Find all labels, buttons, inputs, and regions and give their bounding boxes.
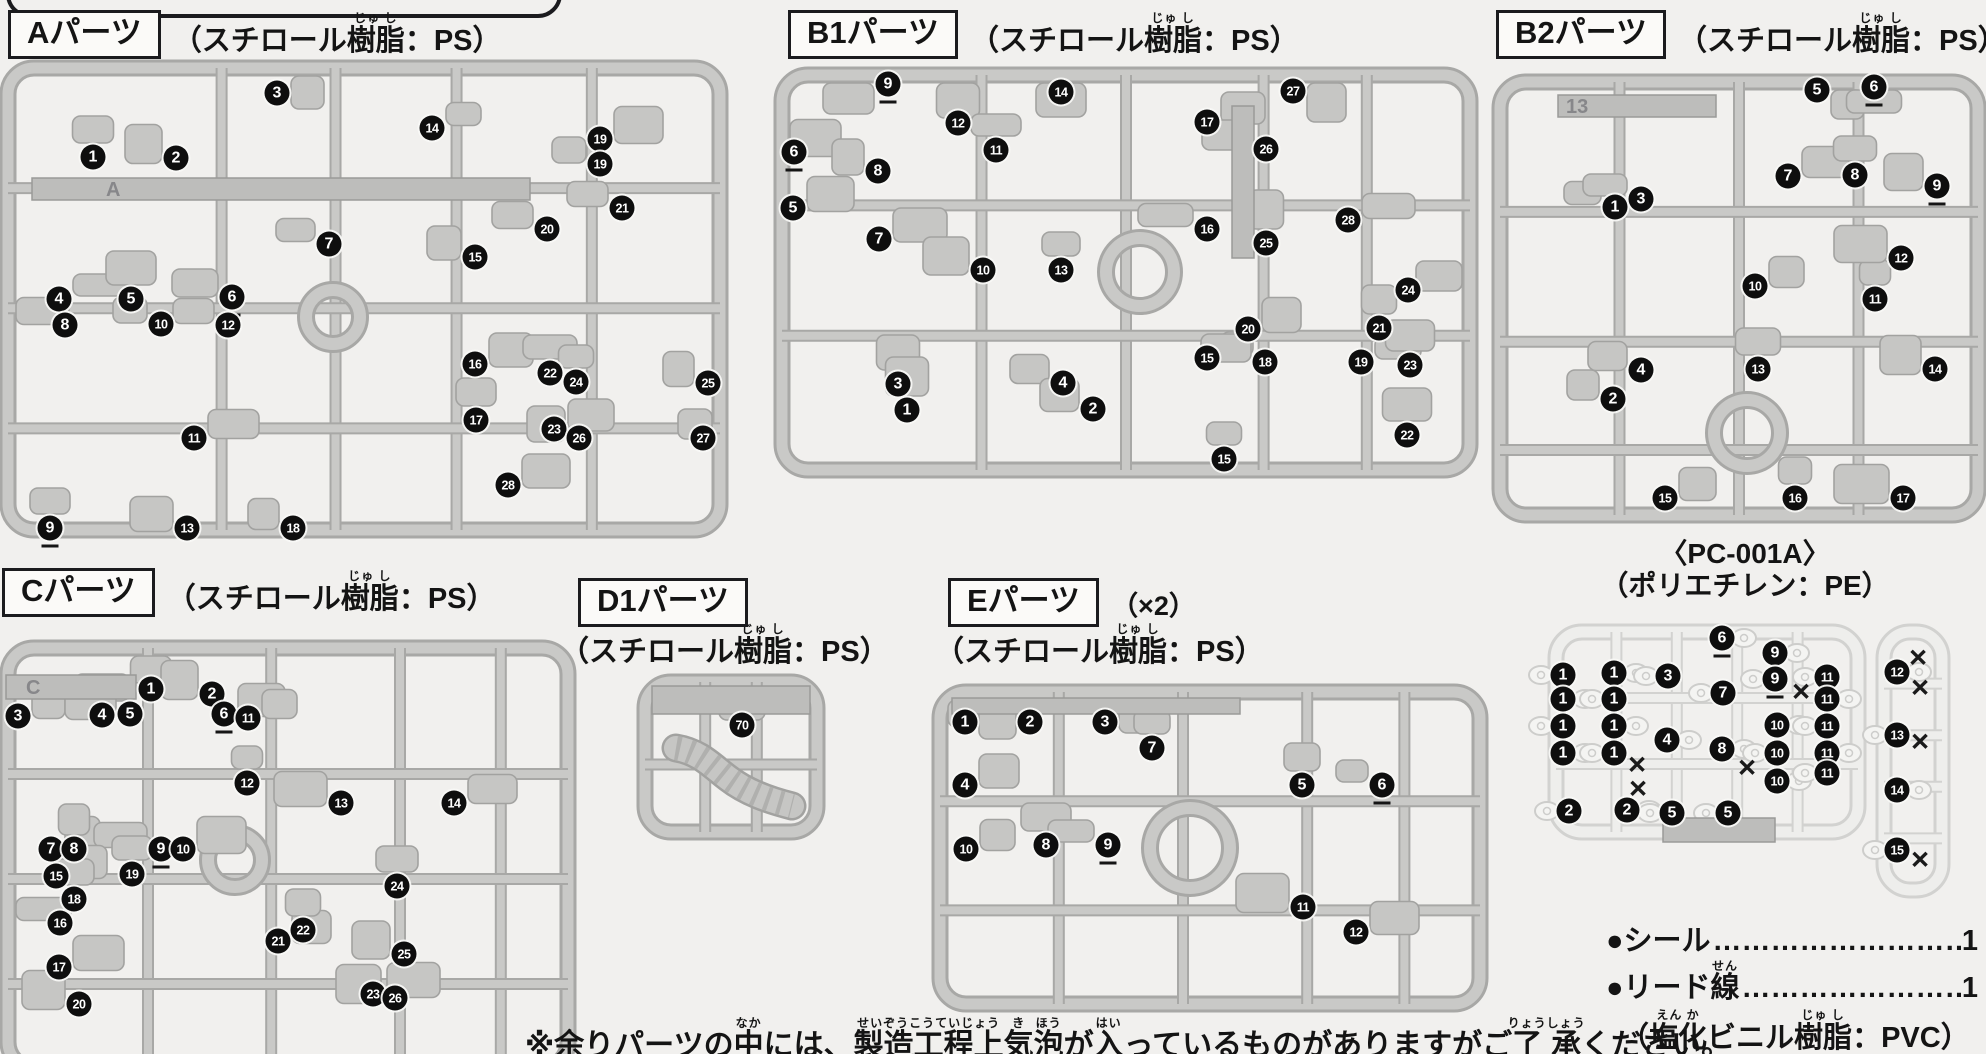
part-number-badge-runner-pc-8: 8 xyxy=(1710,737,1735,762)
part-number-badge-runner-b2-4: 4 xyxy=(1629,358,1654,383)
runner-e-header: Eパーツ（×2） xyxy=(948,578,1196,627)
part-number-badge-runner-pc-4: 4 xyxy=(1655,728,1680,753)
part-number-badge-runner-pc-14: 14 xyxy=(1885,778,1910,803)
part-number-badge-runner-a-16: 16 xyxy=(463,352,488,377)
part-number-badge-runner-a-26: 26 xyxy=(567,426,592,451)
accessory-count: 1 xyxy=(1962,924,1978,959)
part-number-badge-runner-b1-26: 26 xyxy=(1254,137,1279,162)
ruby-annotated-text: 製造工程上せいぞうこうていじょう xyxy=(854,1029,1004,1054)
part-number-badge-runner-pc-1: 1 xyxy=(1602,661,1627,686)
part-number-badge-runner-b1-11: 11 xyxy=(984,138,1009,163)
part-number-badge-runner-pc-13: 13 xyxy=(1885,723,1910,748)
part-number-badge-runner-e-2: 2 xyxy=(1018,710,1043,735)
part-number-badge-runner-b1-12: 12 xyxy=(946,111,971,136)
part-number-badge-runner-e-6: 6 xyxy=(1370,773,1395,798)
not-used-cross-mark: × xyxy=(1738,752,1756,783)
ruby-annotated-text: 樹脂じゅ し xyxy=(1144,25,1202,57)
runner-d1-material: （スチロール樹脂じゅ し：PS） xyxy=(560,622,889,670)
part-number-badge-runner-a-4: 4 xyxy=(47,287,72,312)
part-number-badge-runner-b2-9: 9 xyxy=(1925,174,1950,199)
runner-d1-label: D1パーツ xyxy=(578,578,748,627)
part-number-badge-runner-b1-13: 13 xyxy=(1049,258,1074,283)
digit-orientation-underline xyxy=(1100,862,1117,865)
part-number-badge-runner-b2-11: 11 xyxy=(1863,287,1888,312)
part-number-badge-runner-c-3: 3 xyxy=(6,704,31,729)
part-number-badge-runner-a-9: 9 xyxy=(38,516,63,541)
part-number-badge-runner-pc-5: 5 xyxy=(1660,801,1685,826)
part-number-badge-runner-a-28: 28 xyxy=(496,473,521,498)
part-number-badge-runner-b1-2: 2 xyxy=(1081,397,1106,422)
part-number-badge-runner-c-12: 12 xyxy=(235,771,260,796)
seal-count-line: ●シール………………………………1 xyxy=(1606,924,1978,959)
part-number-badge-runner-pc-10: 10 xyxy=(1765,713,1790,738)
part-number-badge-runner-e-10: 10 xyxy=(954,837,979,862)
ruby-annotated-text: 中なか xyxy=(734,1029,764,1054)
part-number-badge-runner-b1-1: 1 xyxy=(895,398,920,423)
part-number-badge-runner-b2-12: 12 xyxy=(1889,246,1914,271)
ruby-annotated-text: 樹脂じゅ し xyxy=(341,583,399,615)
ruby-annotated-text: 泡ほう xyxy=(1034,1029,1064,1054)
part-number-badge-runner-b1-22: 22 xyxy=(1395,423,1420,448)
part-number-badge-runner-c-15: 15 xyxy=(44,864,69,889)
part-number-badge-runner-a-8: 8 xyxy=(53,313,78,338)
digit-orientation-underline xyxy=(153,866,170,869)
part-number-badge-runner-c-22: 22 xyxy=(291,918,316,943)
part-number-badge-runner-b1-7: 7 xyxy=(867,227,892,252)
runner-d1-art xyxy=(645,682,817,832)
part-number-badge-runner-a-17: 17 xyxy=(464,408,489,433)
runner-a-label: Aパーツ xyxy=(8,10,161,59)
digit-orientation-underline xyxy=(1374,802,1391,805)
part-number-badge-runner-b2-3: 3 xyxy=(1629,187,1654,212)
lead-wire-count-line: ●リード線せん………………………………1 xyxy=(1606,959,1978,1006)
part-number-badge-runner-b1-3: 3 xyxy=(886,372,911,397)
part-number-badge-runner-c-20: 20 xyxy=(67,992,92,1017)
part-number-badge-runner-a-7: 7 xyxy=(317,232,342,257)
dot-leader: ……………………………… xyxy=(1740,971,1962,1006)
runner-b1-art xyxy=(782,75,1470,470)
part-number-badge-runner-b2-1: 1 xyxy=(1603,195,1628,220)
part-number-badge-runner-a-14: 14 xyxy=(420,116,445,141)
not-used-cross-mark: × xyxy=(1792,676,1810,707)
runner-c-material: （スチロール樹脂じゅ し：PS） xyxy=(167,569,496,617)
part-number-badge-runner-pc-2: 2 xyxy=(1557,799,1582,824)
part-number-badge-runner-c-21: 21 xyxy=(266,929,291,954)
part-number-badge-runner-e-11: 11 xyxy=(1291,895,1316,920)
runner-c-header: Cパーツ（スチロール樹脂じゅ し：PS） xyxy=(2,568,496,617)
part-number-badge-runner-b1-21: 21 xyxy=(1367,316,1392,341)
part-number-badge-runner-c-8: 8 xyxy=(62,837,87,862)
part-number-badge-runner-b2-10: 10 xyxy=(1743,274,1768,299)
runner-b1-label: B1パーツ xyxy=(788,10,958,59)
part-number-badge-runner-a-13: 13 xyxy=(175,516,200,541)
part-number-badge-runner-c-11: 11 xyxy=(236,706,261,731)
part-number-badge-runner-c-18: 18 xyxy=(62,887,87,912)
part-number-badge-runner-b2-13: 13 xyxy=(1746,357,1771,382)
part-number-badge-runner-pc-6: 6 xyxy=(1710,626,1735,651)
part-number-badge-runner-pc-1: 1 xyxy=(1602,714,1627,739)
part-number-badge-runner-c-10: 10 xyxy=(171,837,196,862)
part-number-badge-runner-c-6: 6 xyxy=(212,702,237,727)
part-number-badge-runner-b1-6: 6 xyxy=(782,140,807,165)
runner-pc-art xyxy=(1529,629,1942,890)
digit-orientation-underline xyxy=(216,731,233,734)
part-number-badge-runner-e-8: 8 xyxy=(1034,833,1059,858)
part-number-badge-runner-b2-8: 8 xyxy=(1843,163,1868,188)
part-number-badge-runner-a-23: 23 xyxy=(542,417,567,442)
part-number-badge-runner-c-25: 25 xyxy=(392,942,417,967)
part-number-badge-runner-b1-17: 17 xyxy=(1195,110,1220,135)
runner-e-art xyxy=(940,692,1480,1004)
part-number-badge-runner-b1-28: 28 xyxy=(1336,208,1361,233)
part-number-badge-runner-b2-17: 17 xyxy=(1891,486,1916,511)
part-number-badge-runner-a-18: 18 xyxy=(281,516,306,541)
part-number-badge-runner-c-19: 19 xyxy=(120,862,145,887)
part-number-badge-runner-a-22: 22 xyxy=(538,361,563,386)
not-used-cross-mark: × xyxy=(1911,844,1929,875)
part-number-badge-runner-e-1: 1 xyxy=(953,710,978,735)
part-number-badge-runner-a-5: 5 xyxy=(119,287,144,312)
part-number-badge-runner-pc-7: 7 xyxy=(1711,681,1736,706)
part-number-badge-runner-b1-23: 23 xyxy=(1398,353,1423,378)
ruby-annotated-text: 入はい xyxy=(1094,1029,1124,1054)
runner-e-material: （スチロール樹脂じゅ し：PS） xyxy=(935,622,1264,670)
part-number-badge-runner-a-3: 3 xyxy=(265,81,290,106)
accessory-label: ●シール xyxy=(1606,924,1711,959)
digit-orientation-underline xyxy=(786,169,803,172)
runner-e-quantity: （×2） xyxy=(1111,584,1196,627)
part-number-badge-runner-pc-12: 12 xyxy=(1885,660,1910,685)
digit-orientation-underline xyxy=(1767,696,1784,699)
part-number-badge-runner-b1-8: 8 xyxy=(866,159,891,184)
not-used-cross-mark: × xyxy=(1629,773,1647,804)
part-number-badge-runner-c-24: 24 xyxy=(385,874,410,899)
part-number-badge-runner-b1-18: 18 xyxy=(1253,350,1278,375)
runner-c-label: Cパーツ xyxy=(2,568,155,617)
runner-e-label: Eパーツ xyxy=(948,578,1099,627)
part-number-badge-runner-e-9: 9 xyxy=(1096,833,1121,858)
part-number-badge-runner-pc-5: 5 xyxy=(1716,801,1741,826)
runner-b2-header: B2パーツ（スチロール樹脂じゅ し：PS） xyxy=(1496,10,1986,59)
part-number-badge-runner-b1-20: 20 xyxy=(1236,317,1261,342)
runner-a-art: A xyxy=(8,68,720,532)
part-number-badge-runner-a-12: 12 xyxy=(216,313,241,338)
part-number-badge-runner-b1-15: 15 xyxy=(1195,346,1220,371)
not-used-cross-mark: × xyxy=(1911,726,1929,757)
part-number-badge-runner-pc-9: 9 xyxy=(1763,667,1788,692)
part-number-badge-runner-b1-25: 25 xyxy=(1254,231,1279,256)
runner-b2-art: 13 xyxy=(1500,82,1978,515)
part-number-badge-runner-c-23: 23 xyxy=(361,982,386,1007)
part-number-badge-runner-b1-27: 27 xyxy=(1281,79,1306,104)
part-number-badge-runner-a-25: 25 xyxy=(696,371,721,396)
digit-orientation-underline xyxy=(42,545,59,548)
part-number-badge-runner-c-17: 17 xyxy=(47,955,72,980)
part-number-badge-runner-pc-11: 11 xyxy=(1815,761,1840,786)
part-number-badge-runner-pc-10: 10 xyxy=(1765,741,1790,766)
part-number-badge-runner-b1-9: 9 xyxy=(876,72,901,97)
part-number-badge-runner-a-11: 11 xyxy=(182,426,207,451)
part-number-badge-runner-pc-3: 3 xyxy=(1656,664,1681,689)
part-number-badge-runner-b2-16: 16 xyxy=(1783,486,1808,511)
ruby-annotated-text: 樹脂じゅ し xyxy=(1109,636,1167,668)
part-number-badge-runner-c-26: 26 xyxy=(383,986,408,1011)
runner-pc-material: （ポリエチレン：PE） xyxy=(1545,570,1945,602)
part-number-badge-runner-a-27: 27 xyxy=(691,426,716,451)
caution-text: ※余りパーツの中なかには、製造工程上せいぞうこうていじょう気き泡ほうが入はいって… xyxy=(525,1016,1731,1054)
part-number-badge-runner-a-2: 2 xyxy=(164,146,189,171)
part-number-badge-runner-pc-1: 1 xyxy=(1551,663,1576,688)
ruby-annotated-text: 線せん xyxy=(1711,972,1740,1004)
not-used-cross-mark: × xyxy=(1911,672,1929,703)
part-number-badge-runner-a-10: 10 xyxy=(149,312,174,337)
part-number-badge-runner-pc-1: 1 xyxy=(1551,714,1576,739)
part-number-badge-runner-b2-14: 14 xyxy=(1923,357,1948,382)
ruby-annotated-text: 樹脂じゅ し xyxy=(347,25,405,57)
part-number-badge-runner-a-19: 19 xyxy=(588,152,613,177)
part-number-badge-runner-d1-70: 70 xyxy=(730,713,755,738)
part-number-badge-runner-pc-1: 1 xyxy=(1602,741,1627,766)
runner-b1-material: （スチロール樹脂じゅ し：PS） xyxy=(970,11,1299,59)
part-number-badge-runner-e-5: 5 xyxy=(1290,773,1315,798)
part-number-badge-runner-b1-15: 15 xyxy=(1212,447,1237,472)
part-number-badge-runner-a-6: 6 xyxy=(220,285,245,310)
part-number-badge-runner-b2-5: 5 xyxy=(1805,78,1830,103)
part-number-badge-runner-c-1: 1 xyxy=(139,677,164,702)
runner-a-material: （スチロール樹脂じゅ し：PS） xyxy=(173,11,502,59)
runner-pc-header: 〈PC-001A〉（ポリエチレン：PE） xyxy=(1545,538,1945,602)
part-number-badge-runner-pc-15: 15 xyxy=(1885,838,1910,863)
part-number-badge-runner-b2-7: 7 xyxy=(1776,164,1801,189)
part-number-badge-runner-e-3: 3 xyxy=(1093,710,1118,735)
runner-b2-material: （スチロール樹脂じゅ し：PS） xyxy=(1678,11,1986,59)
part-number-badge-runner-pc-11: 11 xyxy=(1815,687,1840,712)
part-number-badge-runner-b1-19: 19 xyxy=(1349,350,1374,375)
accessory-label: ●リード線せん xyxy=(1606,959,1740,1006)
ruby-annotated-text: 樹脂じゅ し xyxy=(1852,25,1910,57)
manual-parts-page: A13C Aパーツ（スチロール樹脂じゅ し：PS）B1パーツ（スチロール樹脂じゅ… xyxy=(0,0,1986,1054)
part-number-badge-runner-pc-9: 9 xyxy=(1763,641,1788,666)
part-number-badge-runner-a-21: 21 xyxy=(610,196,635,221)
digit-orientation-underline xyxy=(1714,655,1731,658)
part-number-badge-runner-c-7: 7 xyxy=(39,837,64,862)
part-number-badge-runner-c-13: 13 xyxy=(329,791,354,816)
part-number-badge-runner-b1-10: 10 xyxy=(971,258,996,283)
digit-orientation-underline xyxy=(1929,203,1946,206)
part-number-badge-runner-b1-4: 4 xyxy=(1051,371,1076,396)
part-number-badge-runner-e-12: 12 xyxy=(1344,920,1369,945)
part-number-badge-runner-b2-15: 15 xyxy=(1653,486,1678,511)
dot-leader: ……………………………… xyxy=(1711,924,1962,959)
part-number-badge-runner-a-24: 24 xyxy=(564,370,589,395)
part-number-badge-runner-a-15: 15 xyxy=(463,245,488,270)
part-number-badge-runner-a-1: 1 xyxy=(81,145,106,170)
runner-d1-header: D1パーツ xyxy=(578,578,748,627)
digit-orientation-underline xyxy=(1866,104,1883,107)
part-number-badge-runner-e-7: 7 xyxy=(1140,736,1165,761)
part-number-badge-runner-c-16: 16 xyxy=(48,911,73,936)
runner-a-header: Aパーツ（スチロール樹脂じゅ し：PS） xyxy=(8,10,502,59)
molded-plate-label: A xyxy=(106,179,120,201)
molded-plate-label: C xyxy=(26,677,40,699)
part-number-badge-runner-a-20: 20 xyxy=(535,217,560,242)
part-number-badge-runner-e-4: 4 xyxy=(953,773,978,798)
part-number-badge-runner-pc-10: 10 xyxy=(1765,769,1790,794)
runner-b1-header: B1パーツ（スチロール樹脂じゅ し：PS） xyxy=(788,10,1299,59)
part-number-badge-runner-c-5: 5 xyxy=(118,702,143,727)
part-number-badge-runner-b2-6: 6 xyxy=(1862,75,1887,100)
ruby-annotated-text: 樹脂じゅ し xyxy=(1794,1022,1852,1054)
not-used-cross-mark: × xyxy=(1909,642,1927,673)
part-number-badge-runner-pc-1: 1 xyxy=(1551,741,1576,766)
digit-orientation-underline xyxy=(880,101,897,104)
ruby-annotated-text: 気き xyxy=(1004,1029,1034,1054)
part-number-badge-runner-c-14: 14 xyxy=(442,791,467,816)
part-number-badge-runner-b1-24: 24 xyxy=(1396,278,1421,303)
accessory-count: 1 xyxy=(1962,971,1978,1006)
molded-plate-label: 13 xyxy=(1566,96,1588,118)
ruby-annotated-text: 樹脂じゅ し xyxy=(734,636,792,668)
runner-b2-label: B2パーツ xyxy=(1496,10,1666,59)
runner-pc-code: 〈PC-001A〉 xyxy=(1545,538,1945,570)
part-number-badge-runner-a-19: 19 xyxy=(588,127,613,152)
part-number-badge-runner-pc-1: 1 xyxy=(1602,687,1627,712)
part-number-badge-runner-c-4: 4 xyxy=(90,703,115,728)
part-number-badge-runner-b1-14: 14 xyxy=(1049,80,1074,105)
part-number-badge-runner-pc-11: 11 xyxy=(1815,714,1840,739)
part-number-badge-runner-b1-5: 5 xyxy=(781,196,806,221)
ruby-annotated-text: 了承りょうしょう xyxy=(1512,1029,1581,1054)
part-number-badge-runner-pc-1: 1 xyxy=(1551,687,1576,712)
part-number-badge-runner-b1-16: 16 xyxy=(1195,217,1220,242)
part-number-badge-runner-b2-2: 2 xyxy=(1601,387,1626,412)
